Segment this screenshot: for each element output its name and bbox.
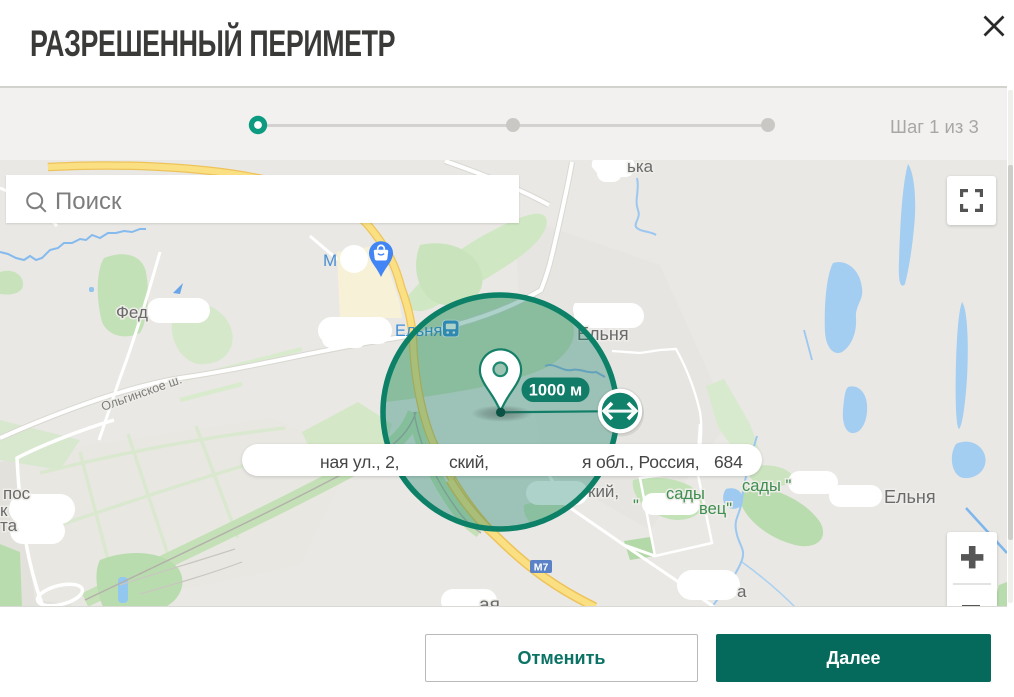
svg-text:М7: М7: [534, 562, 549, 574]
svg-text:сады ": сады ": [742, 477, 791, 495]
svg-text:та: та: [0, 516, 18, 535]
svg-text:вец": вец": [699, 500, 732, 518]
svg-text:Фед: Фед: [116, 303, 148, 322]
svg-text:Ельня: Ельня: [884, 487, 936, 507]
svg-text:": ": [633, 497, 639, 515]
svg-text:М: М: [323, 251, 337, 270]
svg-text:ька: ька: [627, 160, 654, 176]
svg-text:1000 м: 1000 м: [529, 382, 583, 400]
svg-text:а: а: [737, 582, 747, 601]
